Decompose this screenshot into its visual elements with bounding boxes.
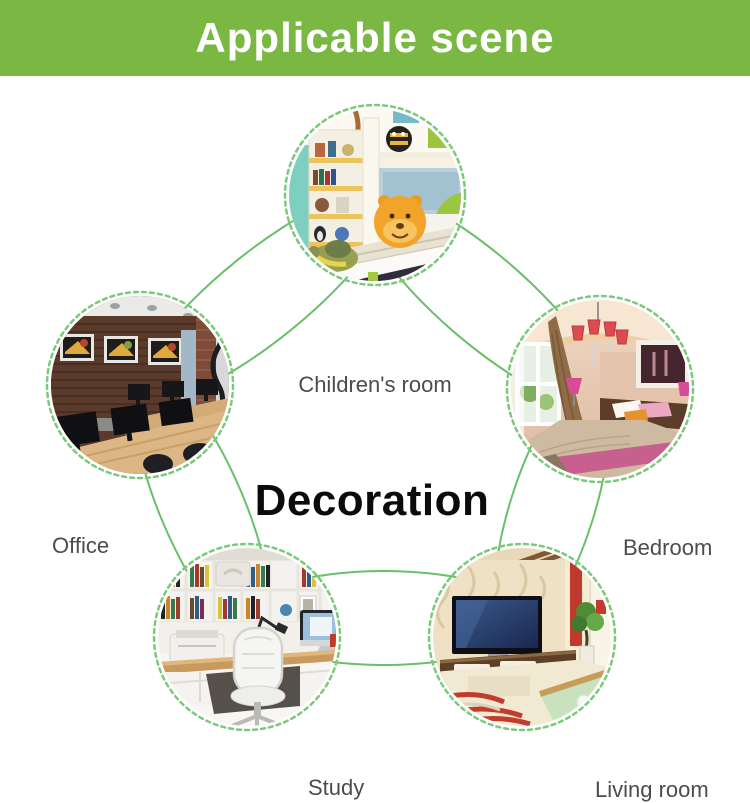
diagram-canvas xyxy=(0,76,750,750)
label-living-room: Living room xyxy=(595,777,709,803)
page-title: Applicable scene xyxy=(195,14,554,62)
bedroom-photo xyxy=(511,300,692,481)
center-label: Decoration xyxy=(255,476,490,526)
label-childrens-room: Children's room xyxy=(298,372,451,398)
label-bedroom: Bedroom xyxy=(623,535,712,561)
applicable-scene-diagram: Children's room Office Bedroom Study Liv… xyxy=(0,76,750,750)
office-photo xyxy=(51,296,229,474)
childrens-room-photo xyxy=(289,109,502,300)
living-room-photo xyxy=(433,548,614,726)
label-study: Study xyxy=(308,775,364,801)
label-office: Office xyxy=(52,533,109,559)
header-banner: Applicable scene xyxy=(0,0,750,76)
